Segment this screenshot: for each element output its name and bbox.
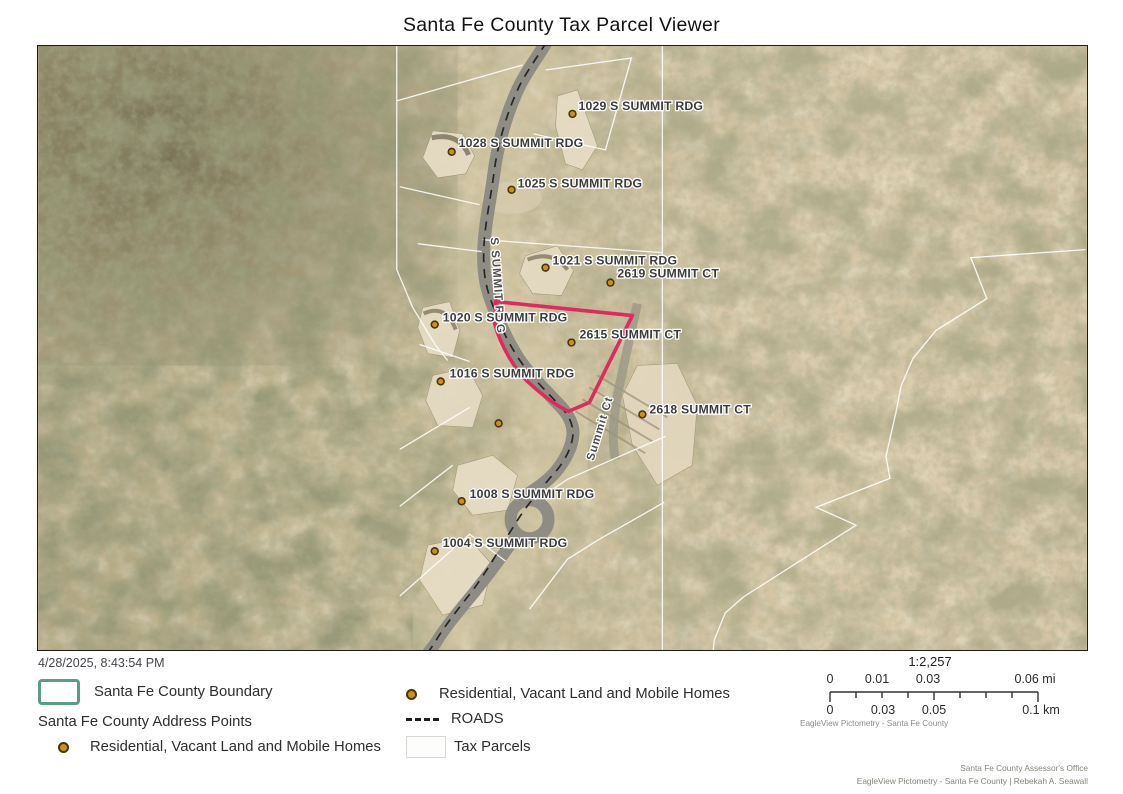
- timestamp: 4/28/2025, 8:43:54 PM: [38, 656, 164, 670]
- address-point: [431, 548, 438, 555]
- address-point-swatch: [406, 689, 417, 700]
- address-label: 1008 S SUMMIT RDG: [470, 487, 595, 501]
- legend-left-column: Santa Fe County Boundary Santa Fe County…: [38, 679, 381, 764]
- map-canvas[interactable]: S SUMMIT RDG Summit Ct 1029 S SUMMIT RDG…: [37, 45, 1088, 651]
- legend-middle-column: Residential, Vacant Land and Mobile Home…: [406, 686, 730, 767]
- scale-ruler: [830, 692, 1038, 702]
- svg-text:0: 0: [827, 672, 834, 686]
- credit-line-1: Santa Fe County Assessor's Office: [857, 762, 1088, 775]
- address-label: 2619 SUMMIT CT: [617, 267, 719, 281]
- address-label: 1004 S SUMMIT RDG: [443, 536, 568, 550]
- address-label: 1025 S SUMMIT RDG: [518, 177, 643, 191]
- roads-swatch: [406, 718, 439, 721]
- page-title: Santa Fe County Tax Parcel Viewer: [0, 14, 1123, 37]
- svg-text:0.1 km: 0.1 km: [1022, 703, 1060, 717]
- scale-km-labels: 0 0.03 0.05 0.1 km: [827, 703, 1060, 717]
- svg-text:0.01: 0.01: [865, 672, 889, 686]
- address-point-swatch: [58, 742, 69, 753]
- svg-text:0.03: 0.03: [871, 703, 895, 717]
- svg-text:0: 0: [827, 703, 834, 717]
- legend-label-residential: Residential, Vacant Land and Mobile Home…: [90, 739, 381, 755]
- address-point: [568, 339, 575, 346]
- legend-label-residential-2: Residential, Vacant Land and Mobile Home…: [439, 686, 730, 702]
- scale-bar: 1:2,257 0 0.01 0.03 0.06 mi 0 0.03 0.05 …: [788, 652, 1100, 737]
- scale-ratio: 1:2,257: [908, 654, 951, 669]
- credit-line-2: EagleView Pictometry - Santa Fe County |…: [857, 775, 1088, 788]
- address-label: 1021 S SUMMIT RDG: [553, 254, 678, 268]
- address-point: [607, 279, 614, 286]
- address-label: 1028 S SUMMIT RDG: [459, 136, 584, 150]
- address-label: 2618 SUMMIT CT: [649, 402, 751, 416]
- address-point: [508, 186, 515, 193]
- address-point: [542, 264, 549, 271]
- scale-source: EagleView Pictometry - Santa Fe County: [800, 719, 949, 728]
- county-boundary-swatch: [38, 679, 80, 705]
- address-point: [639, 411, 646, 418]
- svg-text:0.03: 0.03: [916, 672, 940, 686]
- scale-mi-labels: 0 0.01 0.03 0.06 mi: [827, 672, 1056, 686]
- legend-label-county-boundary: Santa Fe County Boundary: [94, 684, 273, 700]
- legend-label-roads: ROADS: [451, 711, 504, 727]
- address-point: [448, 148, 455, 155]
- address-point: [431, 321, 438, 328]
- address-label: 1016 S SUMMIT RDG: [450, 366, 575, 380]
- address-label: 1020 S SUMMIT RDG: [443, 311, 568, 325]
- address-point: [437, 378, 444, 385]
- tax-parcels-swatch: [406, 736, 446, 758]
- svg-text:0.06 mi: 0.06 mi: [1015, 672, 1056, 686]
- address-point: [458, 498, 465, 505]
- svg-text:0.05: 0.05: [922, 703, 946, 717]
- legend-group-address-points: Santa Fe County Address Points: [38, 714, 252, 730]
- address-point: [569, 110, 576, 117]
- address-point: [495, 420, 502, 427]
- address-label: 2615 SUMMIT CT: [579, 328, 681, 342]
- aerial-map[interactable]: S SUMMIT RDG Summit Ct 1029 S SUMMIT RDG…: [38, 46, 1087, 650]
- legend-label-tax-parcels: Tax Parcels: [454, 739, 530, 755]
- map-credits: Santa Fe County Assessor's Office EagleV…: [857, 762, 1088, 788]
- address-label: 1029 S SUMMIT RDG: [578, 99, 703, 113]
